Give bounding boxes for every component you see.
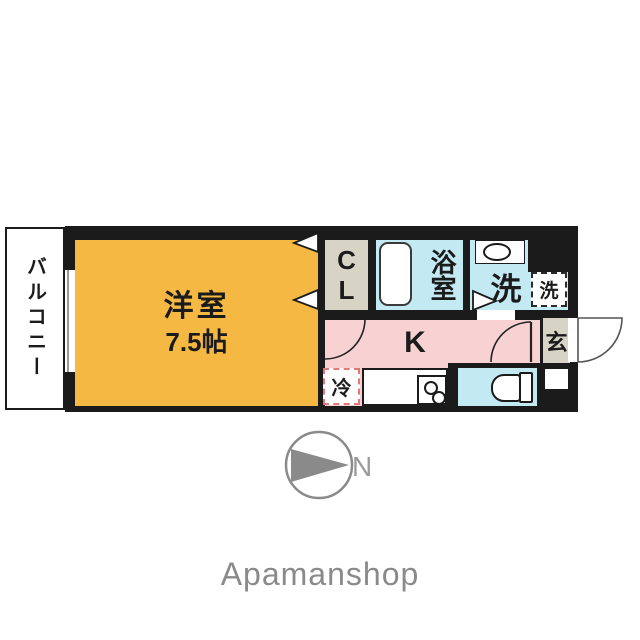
- compass-icon: [286, 432, 352, 498]
- entrance-door-icon: [578, 318, 622, 362]
- compass-needle-icon: [291, 449, 349, 482]
- stove-burner-icon: [432, 391, 446, 405]
- entrance-door-opening: [568, 318, 578, 362]
- living-room-size: 7.5帖: [165, 326, 227, 359]
- entrance-room: 玄: [543, 318, 570, 363]
- balcony-label: バルコニー: [21, 256, 50, 381]
- living-room-label: 洋室: [164, 288, 230, 326]
- toilet-tank-icon: [519, 372, 533, 403]
- brand-logo-text: Apamanshop: [0, 556, 640, 593]
- washroom-door-opening: [477, 310, 515, 320]
- sink-basin-icon: [483, 243, 511, 261]
- bathroom-label: 浴室: [422, 241, 462, 309]
- bathtub-icon: [379, 242, 412, 306]
- closet-room: CL: [325, 240, 368, 310]
- washroom-label: 洗: [483, 263, 529, 309]
- washer-space-box: 洗: [531, 272, 567, 307]
- fridge-space-box: 冷: [323, 368, 360, 405]
- toilet-icon: [491, 374, 521, 402]
- shoe-cabinet-icon: [544, 368, 569, 390]
- living-room: 洋室 7.5帖: [75, 240, 318, 406]
- floorplan-page: { "colors": { "room_orange": "#f5b842", …: [0, 0, 640, 640]
- balcony-box: バルコニー: [5, 227, 65, 410]
- closet-label: CL: [334, 245, 360, 305]
- kitchen-label: K: [385, 322, 445, 364]
- corner-wall-block: [528, 226, 578, 272]
- compass-north-label: N: [352, 450, 392, 484]
- window-frame-line: [67, 270, 69, 372]
- stove-icon: [417, 375, 447, 405]
